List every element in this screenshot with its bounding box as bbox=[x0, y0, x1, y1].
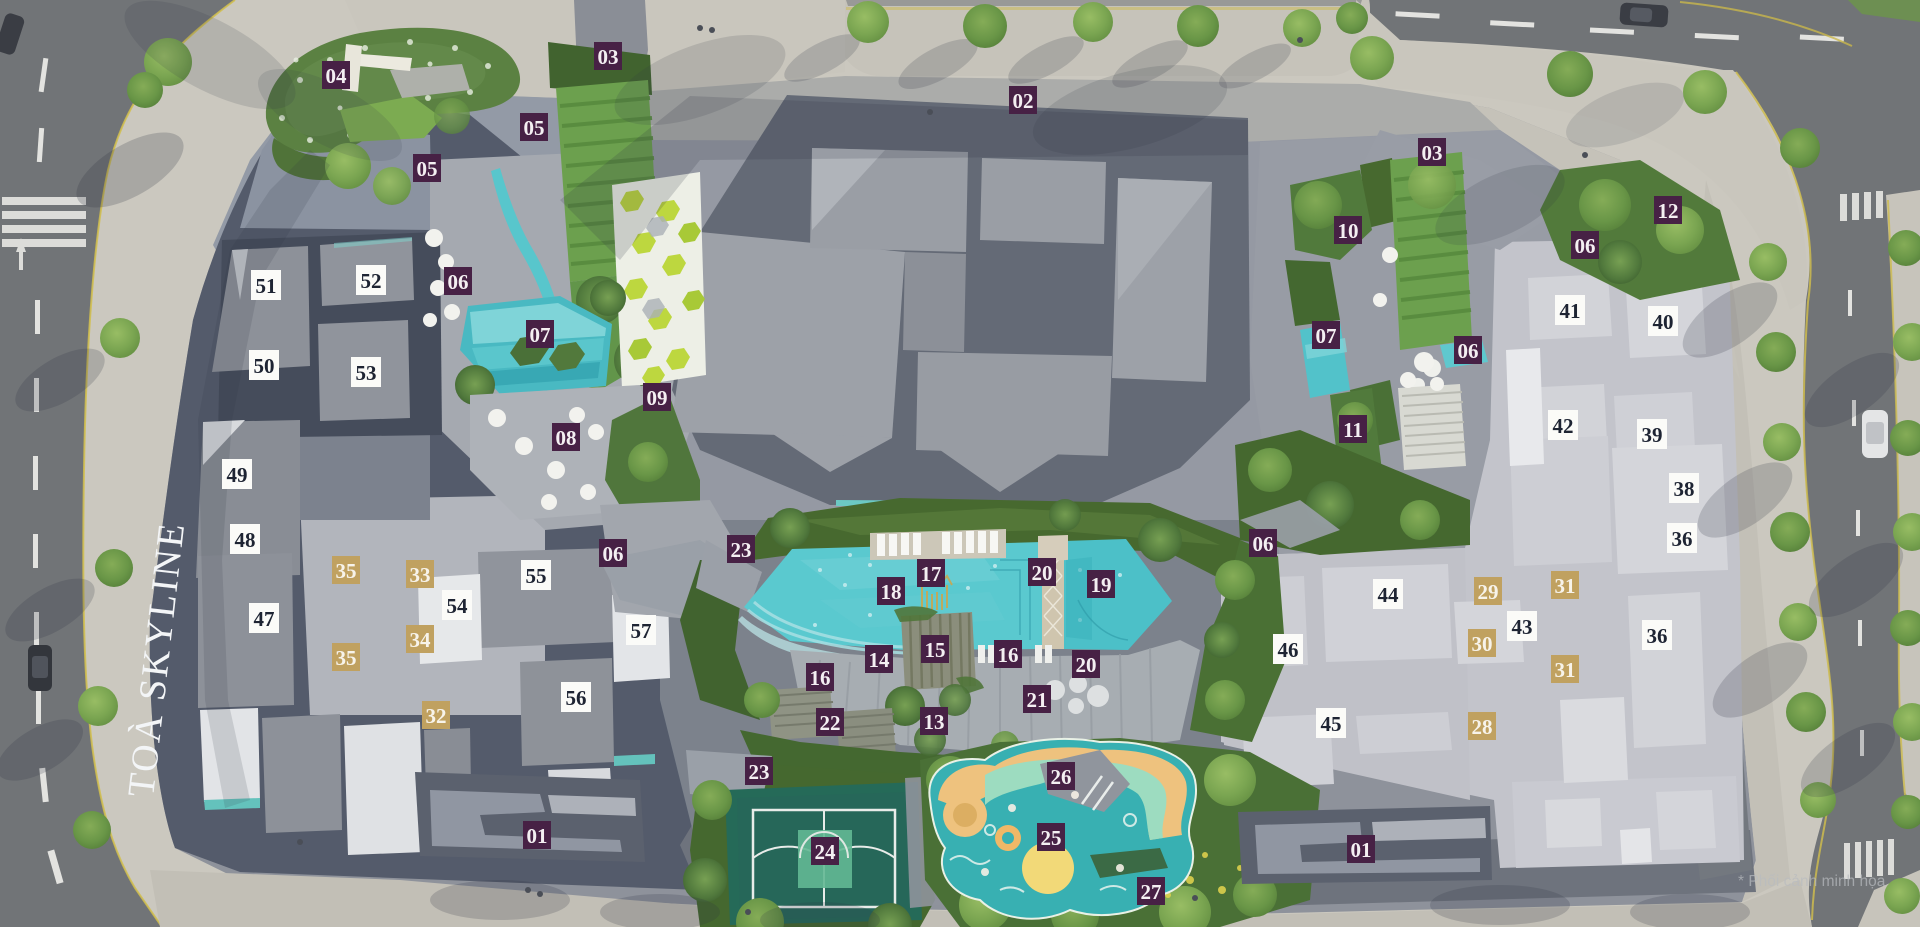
svg-text:20: 20 bbox=[1076, 653, 1097, 677]
svg-text:16: 16 bbox=[998, 643, 1019, 667]
svg-text:26: 26 bbox=[1051, 765, 1072, 789]
svg-text:23: 23 bbox=[731, 538, 752, 562]
svg-text:44: 44 bbox=[1378, 583, 1400, 607]
svg-text:39: 39 bbox=[1642, 423, 1663, 447]
svg-text:31: 31 bbox=[1555, 574, 1576, 598]
svg-text:31: 31 bbox=[1555, 658, 1576, 682]
svg-text:16: 16 bbox=[810, 666, 831, 690]
svg-text:22: 22 bbox=[820, 711, 841, 735]
svg-text:12: 12 bbox=[1658, 199, 1679, 223]
svg-text:13: 13 bbox=[924, 710, 945, 734]
svg-text:06: 06 bbox=[603, 542, 624, 566]
svg-text:20: 20 bbox=[1032, 561, 1053, 585]
svg-text:07: 07 bbox=[530, 323, 551, 347]
svg-text:02: 02 bbox=[1013, 89, 1034, 113]
svg-text:01: 01 bbox=[1351, 838, 1372, 862]
svg-text:05: 05 bbox=[417, 157, 438, 181]
svg-text:46: 46 bbox=[1278, 638, 1299, 662]
svg-text:01: 01 bbox=[527, 824, 548, 848]
svg-text:06: 06 bbox=[1253, 532, 1274, 556]
svg-text:03: 03 bbox=[598, 45, 619, 69]
svg-text:32: 32 bbox=[426, 704, 447, 728]
svg-text:41: 41 bbox=[1560, 299, 1581, 323]
svg-text:35: 35 bbox=[336, 559, 357, 583]
svg-text:52: 52 bbox=[361, 269, 382, 293]
svg-text:36: 36 bbox=[1647, 624, 1668, 648]
svg-text:53: 53 bbox=[356, 361, 377, 385]
svg-text:56: 56 bbox=[566, 686, 587, 710]
svg-text:42: 42 bbox=[1553, 414, 1574, 438]
svg-text:23: 23 bbox=[749, 760, 770, 784]
svg-text:36: 36 bbox=[1672, 527, 1693, 551]
svg-text:11: 11 bbox=[1343, 418, 1363, 442]
svg-text:06: 06 bbox=[1575, 234, 1596, 258]
svg-text:35: 35 bbox=[336, 646, 357, 670]
svg-text:40: 40 bbox=[1653, 310, 1674, 334]
svg-text:38: 38 bbox=[1674, 477, 1695, 501]
svg-text:04: 04 bbox=[326, 64, 348, 88]
svg-text:50: 50 bbox=[254, 354, 275, 378]
svg-text:03: 03 bbox=[1422, 141, 1443, 165]
svg-text:45: 45 bbox=[1321, 712, 1342, 736]
svg-text:21: 21 bbox=[1027, 688, 1048, 712]
svg-text:55: 55 bbox=[526, 564, 547, 588]
svg-text:15: 15 bbox=[925, 638, 946, 662]
svg-text:34: 34 bbox=[410, 628, 432, 652]
svg-text:08: 08 bbox=[556, 426, 577, 450]
svg-text:24: 24 bbox=[815, 840, 837, 864]
svg-text:06: 06 bbox=[448, 270, 469, 294]
svg-text:09: 09 bbox=[647, 386, 668, 410]
svg-text:25: 25 bbox=[1041, 826, 1062, 850]
svg-text:33: 33 bbox=[410, 563, 431, 587]
svg-text:06: 06 bbox=[1458, 339, 1479, 363]
svg-text:10: 10 bbox=[1338, 219, 1359, 243]
svg-text:17: 17 bbox=[921, 562, 942, 586]
svg-text:30: 30 bbox=[1472, 632, 1493, 656]
svg-text:43: 43 bbox=[1512, 615, 1533, 639]
svg-text:49: 49 bbox=[227, 463, 248, 487]
svg-text:28: 28 bbox=[1472, 715, 1493, 739]
svg-text:47: 47 bbox=[254, 607, 275, 631]
svg-text:05: 05 bbox=[524, 116, 545, 140]
svg-text:54: 54 bbox=[447, 594, 469, 618]
svg-text:57: 57 bbox=[631, 619, 652, 643]
svg-text:29: 29 bbox=[1478, 580, 1499, 604]
svg-text:27: 27 bbox=[1141, 880, 1162, 904]
svg-text:19: 19 bbox=[1091, 573, 1112, 597]
svg-text:51: 51 bbox=[256, 274, 277, 298]
svg-text:07: 07 bbox=[1316, 324, 1337, 348]
svg-text:18: 18 bbox=[881, 580, 902, 604]
svg-text:48: 48 bbox=[235, 528, 256, 552]
svg-text:14: 14 bbox=[869, 648, 891, 672]
svg-text:* Phối cảnh minh họa: * Phối cảnh minh họa bbox=[1738, 873, 1886, 890]
